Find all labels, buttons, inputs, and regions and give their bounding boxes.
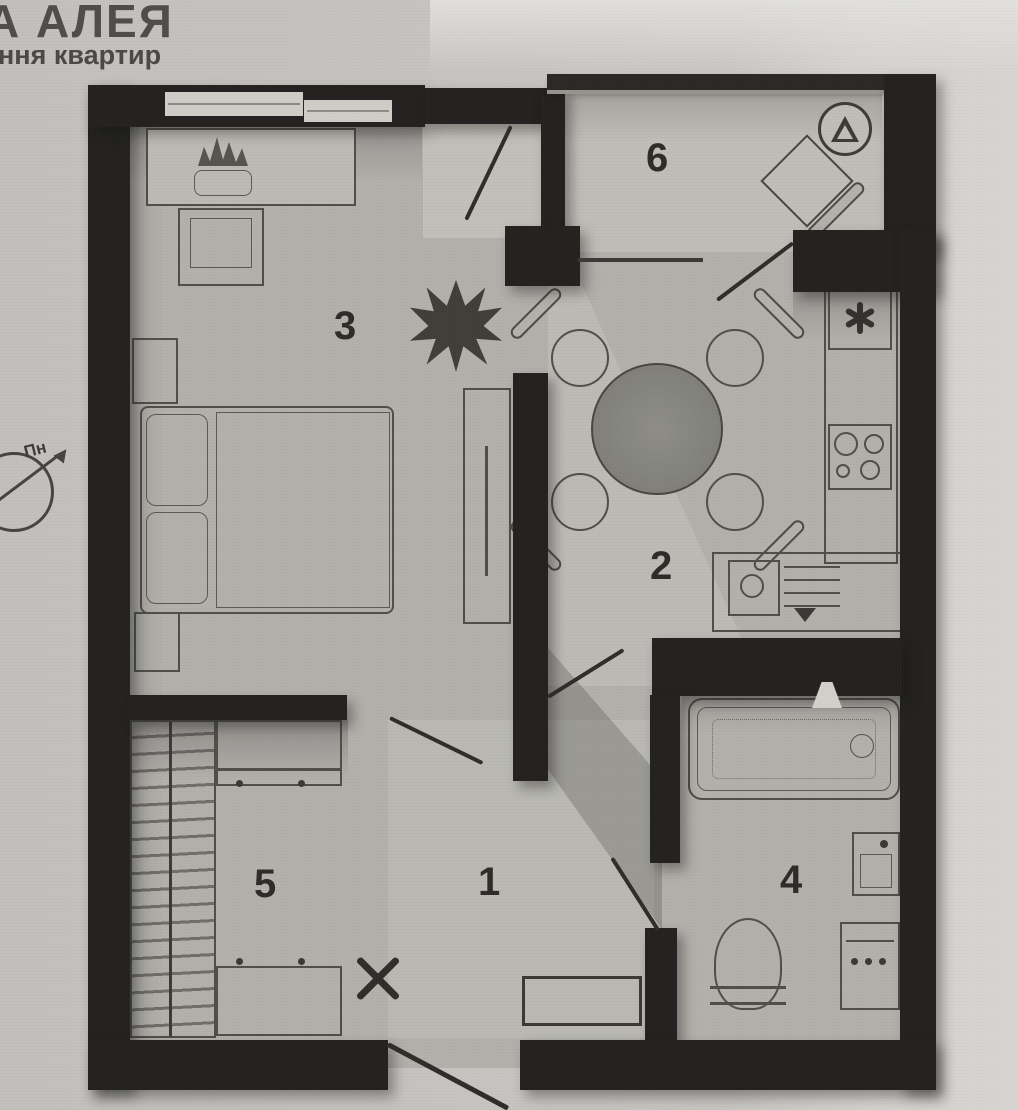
desk-chair-seat — [190, 218, 252, 268]
shelf-handle-dot — [236, 780, 243, 787]
drainboard-line — [784, 592, 840, 594]
wardrobe-hanging-rail — [130, 720, 216, 1038]
balcony-door-threshold — [578, 258, 703, 262]
wardrobe-shelf-bottom — [216, 966, 342, 1036]
triangle-badge-icon — [818, 102, 872, 156]
toilet-tank-line — [710, 986, 786, 989]
wall-bedroom-wardrobe — [128, 695, 347, 720]
compass-north-label: Пн — [22, 438, 49, 463]
washing-machine-line — [846, 940, 894, 942]
balcony-sill-line — [547, 90, 890, 94]
window-1-glass-line — [168, 103, 300, 105]
washing-machine-dot — [865, 958, 872, 965]
nightstand-bottom — [134, 612, 180, 672]
floor-plan-page: А АЛЕЯ ння квартир — [0, 0, 1018, 1110]
dining-chair-tr — [706, 329, 764, 387]
wall-bottom-left — [88, 1040, 388, 1090]
bed-mattress — [216, 412, 390, 608]
room-label-4: 4 — [780, 860, 802, 900]
wardrobe-shelf-top — [216, 720, 342, 786]
drainboard-line — [784, 605, 840, 607]
washing-machine-dot — [879, 958, 886, 965]
room-label-5: 5 — [254, 864, 276, 904]
washbasin-tap-dot — [880, 840, 888, 848]
sink-drain — [740, 574, 764, 598]
window-2-glass-line — [307, 110, 389, 112]
toilet-bowl — [714, 918, 782, 1010]
drainboard-line — [784, 566, 840, 568]
fridge-asterisk-icon — [844, 302, 876, 334]
doormat — [522, 976, 642, 1026]
washing-machine — [840, 922, 900, 1010]
dining-table — [591, 363, 723, 495]
bed-pillow-2 — [146, 512, 208, 604]
burner-1 — [834, 432, 858, 456]
wall-bath-left-lower — [645, 928, 677, 1042]
wall-kitchen-corner — [505, 226, 580, 286]
shelf-top-line — [218, 768, 340, 771]
washbasin-inner — [860, 854, 892, 888]
washing-machine-dot — [851, 958, 858, 965]
room-label-2: 2 — [650, 546, 672, 586]
x-mark-icon — [350, 950, 406, 1006]
burner-4 — [860, 460, 880, 480]
wall-balcony-right — [884, 74, 936, 252]
shelf-handle-dot — [236, 958, 243, 965]
dining-chair-tl — [551, 329, 609, 387]
wall-bath-left-upper — [650, 695, 680, 863]
wall-right — [900, 230, 936, 1090]
dining-chair-br — [706, 473, 764, 531]
wall-balcony-glazing — [547, 74, 890, 90]
bed-pillow-1 — [146, 414, 208, 506]
room-label-1: 1 — [478, 862, 500, 902]
wall-top-vestibule — [425, 88, 547, 124]
shelf-handle-dot — [298, 958, 305, 965]
wall-kitchen-bath-divider — [652, 638, 902, 696]
tv-cabinet-line — [485, 446, 488, 576]
burner-2 — [864, 434, 884, 454]
page-subtitle: ння квартир — [0, 40, 161, 71]
wall-left — [88, 85, 130, 1090]
wall-bottom-right — [520, 1040, 936, 1090]
nightstand-top — [132, 338, 178, 404]
drainboard-line — [784, 579, 840, 581]
paper-glare — [430, 0, 1018, 74]
bathtub-drain — [850, 734, 874, 758]
desk-keyboard — [194, 170, 252, 196]
room-label-6: 6 — [646, 138, 668, 178]
wall-hall-kitchen-pillar — [513, 373, 548, 781]
wardrobe-rail-line — [169, 722, 172, 1036]
dining-chair-bl — [551, 473, 609, 531]
desk — [146, 128, 356, 206]
shelf-handle-dot — [298, 780, 305, 787]
burner-3 — [836, 464, 850, 478]
room-label-3: 3 — [334, 306, 356, 346]
toilet-tank-line — [710, 1002, 786, 1005]
